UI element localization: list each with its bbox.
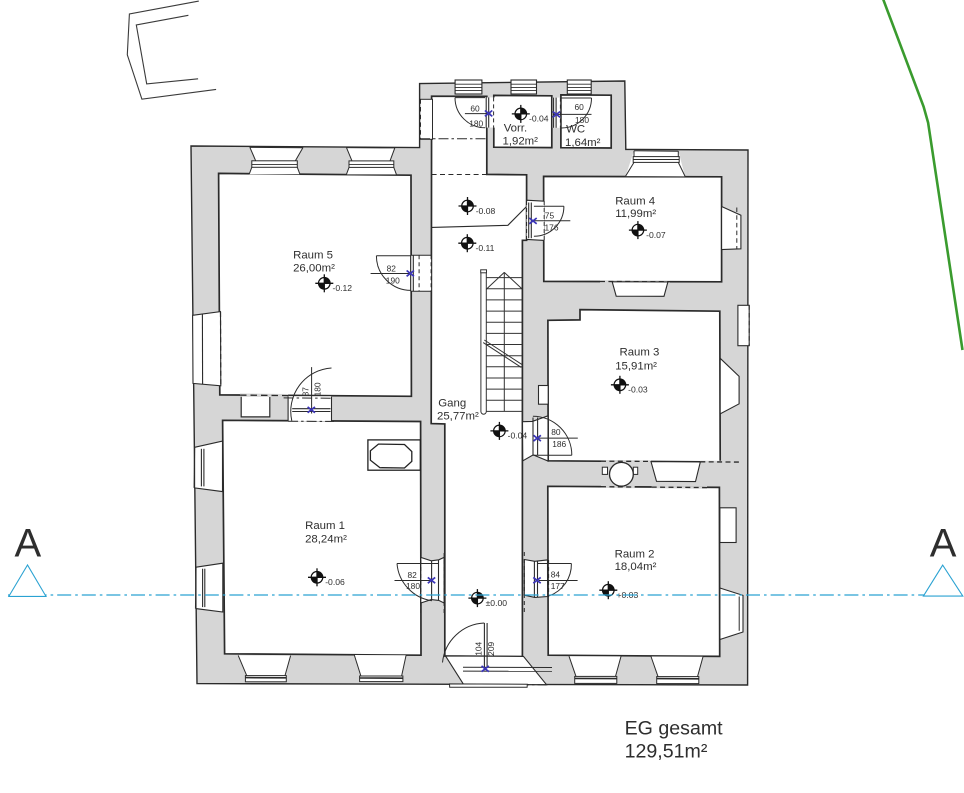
svg-text:180: 180 (406, 581, 420, 591)
svg-text:-0.06: -0.06 (325, 577, 345, 587)
svg-text:26,00m²: 26,00m² (293, 262, 335, 274)
svg-text:Gang: Gang (438, 398, 466, 410)
svg-text:177: 177 (551, 581, 565, 591)
svg-text:104: 104 (473, 641, 483, 655)
svg-text:1,92m²: 1,92m² (503, 136, 539, 148)
svg-text:28,24m²: 28,24m² (305, 534, 347, 546)
svg-text:60: 60 (575, 102, 585, 112)
svg-text:-0.08: -0.08 (476, 206, 496, 216)
svg-text:129,51m²: 129,51m² (625, 741, 708, 763)
svg-text:-0.11: -0.11 (476, 243, 495, 253)
svg-text:1,64m²: 1,64m² (565, 137, 601, 149)
svg-text:Raum 2: Raum 2 (615, 549, 655, 561)
svg-text:84: 84 (551, 570, 561, 580)
svg-text:180: 180 (469, 119, 483, 129)
svg-text:Vorr.: Vorr. (504, 122, 527, 134)
svg-text:190: 190 (386, 275, 400, 285)
svg-text:209: 209 (486, 641, 496, 655)
svg-text:A: A (15, 522, 42, 566)
svg-text:75: 75 (545, 210, 555, 220)
svg-text:-0.03: -0.03 (628, 385, 648, 395)
svg-text:15,91m²: 15,91m² (615, 360, 657, 372)
svg-text:Raum 3: Raum 3 (620, 347, 660, 359)
svg-text:Raum 1: Raum 1 (305, 520, 345, 532)
svg-text:Raum 5: Raum 5 (293, 249, 333, 261)
svg-text:A: A (930, 522, 957, 566)
svg-text:WC: WC (566, 123, 585, 135)
svg-text:-0.07: -0.07 (646, 230, 666, 240)
svg-text:Raum 4: Raum 4 (615, 195, 655, 207)
svg-text:80: 80 (551, 427, 561, 437)
svg-text:87: 87 (300, 387, 310, 397)
svg-text:60: 60 (470, 104, 480, 114)
svg-text:11,99m²: 11,99m² (615, 208, 656, 220)
svg-text:-0.04: -0.04 (508, 431, 528, 441)
svg-text:82: 82 (408, 570, 418, 580)
svg-text:186: 186 (552, 439, 566, 449)
svg-text:82: 82 (387, 263, 397, 273)
svg-text:-0.12: -0.12 (333, 283, 353, 293)
svg-text:-0.04: -0.04 (529, 114, 549, 124)
svg-text:EG gesamt: EG gesamt (625, 717, 724, 739)
svg-text:18,04m²: 18,04m² (615, 561, 657, 573)
svg-text:±0.00: ±0.00 (486, 598, 508, 608)
svg-text:176: 176 (545, 223, 559, 233)
svg-text:180: 180 (313, 382, 323, 396)
svg-text:25,77m²: 25,77m² (437, 411, 479, 423)
